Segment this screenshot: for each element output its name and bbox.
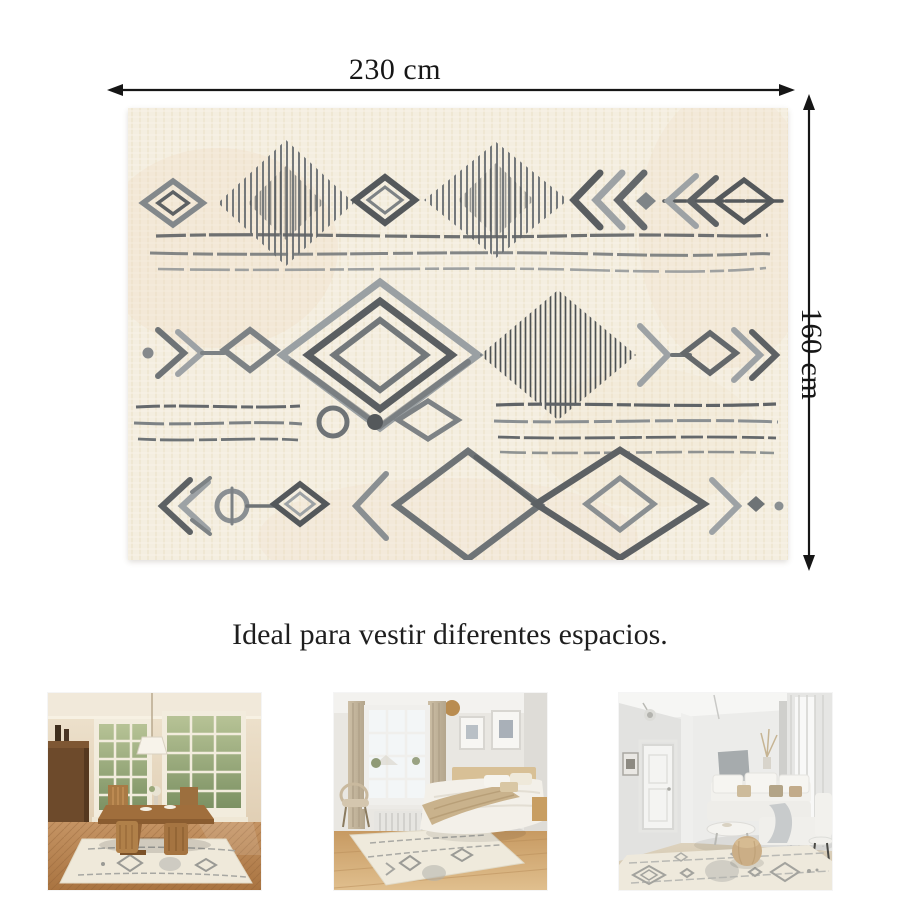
rug-pattern [128, 108, 788, 560]
height-dimension-label: 160 cm [794, 308, 828, 400]
wall-frame [623, 753, 638, 775]
width-dimension-label: 230 cm [0, 53, 790, 87]
living-room-photo [619, 693, 832, 890]
dining-table [98, 785, 214, 855]
nightstand [532, 797, 547, 821]
door [640, 741, 676, 831]
dining-room-photo [48, 693, 261, 890]
bedroom-photo [334, 693, 547, 890]
window [362, 705, 432, 809]
product-image: 230 cm 160 cm [0, 0, 900, 900]
rug-product-photo [128, 108, 788, 560]
caption-text: Ideal para vestir diferentes espacios. [0, 618, 900, 652]
